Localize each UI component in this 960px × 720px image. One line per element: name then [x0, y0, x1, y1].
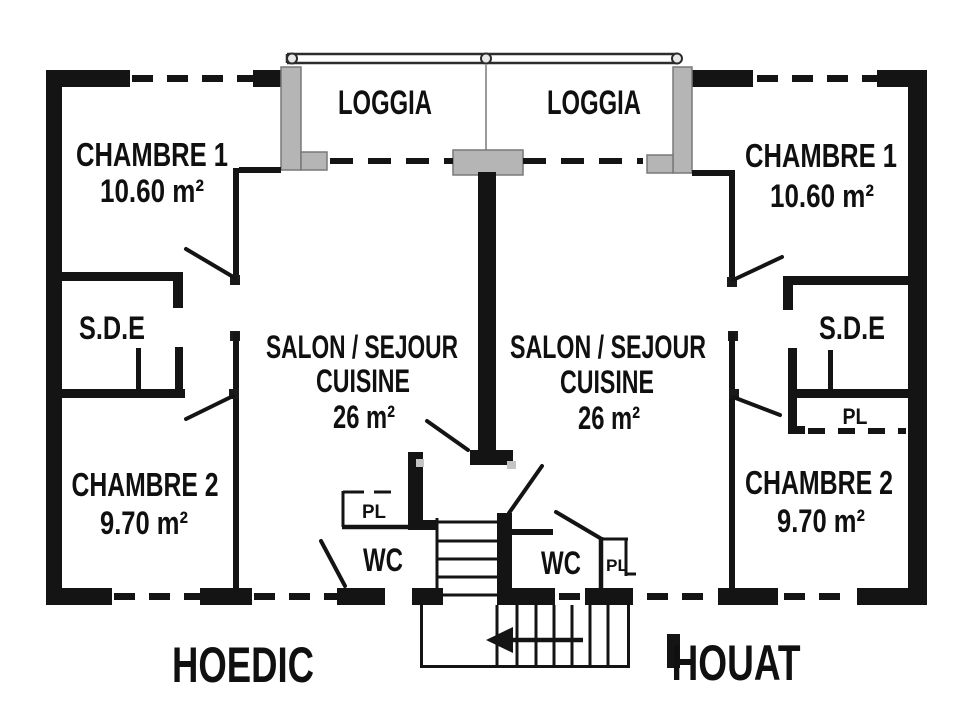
pillar-right	[673, 67, 692, 173]
label-salon-right-line1: SALON / SEJOUR	[510, 329, 706, 365]
floor-plan-drawing: LOGGIA CHAMBRE 1 10.60 m² S.D.E SALON / …	[0, 0, 960, 720]
entry-wall-foot	[408, 520, 437, 530]
label-salon-left-line1: SALON / SEJOUR	[266, 329, 458, 365]
apartment-name-left: HOEDIC	[172, 637, 314, 693]
wall-segment	[253, 70, 281, 87]
wall-segment	[46, 588, 112, 605]
pillar-left-foot	[301, 152, 327, 170]
label-pl-left: PL	[362, 502, 386, 523]
label-chambre1-area-right: 10.60 m²	[770, 178, 874, 214]
pillar-right-foot	[647, 155, 673, 173]
chambre2-door-leaf	[733, 397, 780, 415]
party-wall	[478, 172, 496, 452]
wall-segment	[585, 588, 633, 605]
railing-knob	[287, 54, 297, 64]
pl-closet-wall	[788, 398, 797, 428]
chambre2-wall	[233, 333, 239, 588]
chambre2-wall	[729, 333, 735, 588]
party-wall-cap	[470, 450, 513, 465]
label-chambre2-area-left: 9.70 m²	[100, 505, 188, 541]
center-pillar-block	[453, 150, 523, 175]
apartment-name-right: HOUAT	[672, 635, 801, 691]
label-wc-left: WC	[363, 542, 403, 578]
floor-plan-page: LOGGIA CHAMBRE 1 10.60 m² S.D.E SALON / …	[0, 0, 960, 720]
sde-bottom-wall	[788, 389, 908, 398]
stair-direction-arrow-head	[486, 627, 513, 653]
wall-segment	[337, 588, 385, 605]
railing-knob	[481, 54, 491, 64]
label-sde-left: S.D.E	[79, 310, 145, 346]
label-chambre1-area-left: 10.60 m²	[100, 173, 204, 209]
sde-fixture	[828, 350, 833, 394]
label-chambre1-right: CHAMBRE 1	[745, 137, 897, 174]
houat-interior	[497, 170, 908, 605]
chambre2-door-leaf	[186, 396, 233, 419]
label-wc-right: WC	[541, 545, 581, 581]
sde-top-wall	[62, 272, 183, 281]
label-loggia-left: LOGGIA	[338, 84, 432, 122]
wc-door-leaf	[556, 512, 600, 538]
label-chambre2-area-right: 9.70 m²	[777, 503, 865, 539]
sde-bottom-wall	[62, 389, 185, 398]
chambre1-door-leaf	[186, 249, 235, 278]
label-sde-right: S.D.E	[819, 310, 885, 346]
sde-fixture	[136, 348, 141, 393]
sde-door-jamb	[175, 347, 183, 393]
chambre1-wall	[729, 173, 735, 280]
label-chambre1-left: CHAMBRE 1	[76, 136, 228, 173]
wall-segment	[239, 167, 281, 173]
stairwell-outline	[422, 605, 629, 667]
wall-segment	[46, 70, 130, 87]
sde-door-jamb	[788, 348, 797, 394]
entry-door-leaf	[427, 421, 468, 450]
wc-door-leaf	[321, 541, 345, 586]
label-salon-right-line2: CUISINE	[560, 364, 654, 400]
label-chambre2-left: CHAMBRE 2	[72, 466, 219, 503]
sde-door-jamb	[173, 272, 183, 308]
door-hinge	[507, 461, 516, 469]
label-salon-area-left: 26 m²	[333, 399, 395, 435]
wall-segment	[692, 170, 735, 176]
wall-left	[46, 70, 62, 605]
door-hinge	[416, 459, 424, 467]
wall-segment	[692, 70, 753, 87]
label-salon-area-right: 26 m²	[578, 400, 640, 436]
wall-right	[908, 70, 927, 605]
entry-door-leaf	[509, 466, 542, 513]
pillar-left	[281, 67, 301, 170]
label-pl-sde-right: PL	[843, 404, 868, 429]
wall-segment	[857, 588, 927, 605]
chambre1-door-leaf	[733, 257, 782, 280]
wc-top-wall	[512, 529, 553, 535]
railing-knob	[672, 54, 682, 64]
central-wall	[470, 172, 513, 465]
label-loggia-right: LOGGIA	[547, 84, 641, 122]
label-salon-left-line2: CUISINE	[316, 363, 410, 399]
wall-segment	[718, 588, 778, 605]
sde-top-wall	[783, 276, 908, 285]
wall-segment	[877, 70, 927, 87]
sde-door-jamb	[783, 276, 793, 310]
entry-wall	[497, 513, 512, 605]
wall-segment	[200, 588, 252, 605]
label-pl-wc-right: PL	[606, 556, 628, 575]
chambre1-wall	[233, 168, 239, 277]
label-chambre2-right: CHAMBRE 2	[745, 464, 893, 501]
pl-closet-wall	[788, 426, 805, 434]
